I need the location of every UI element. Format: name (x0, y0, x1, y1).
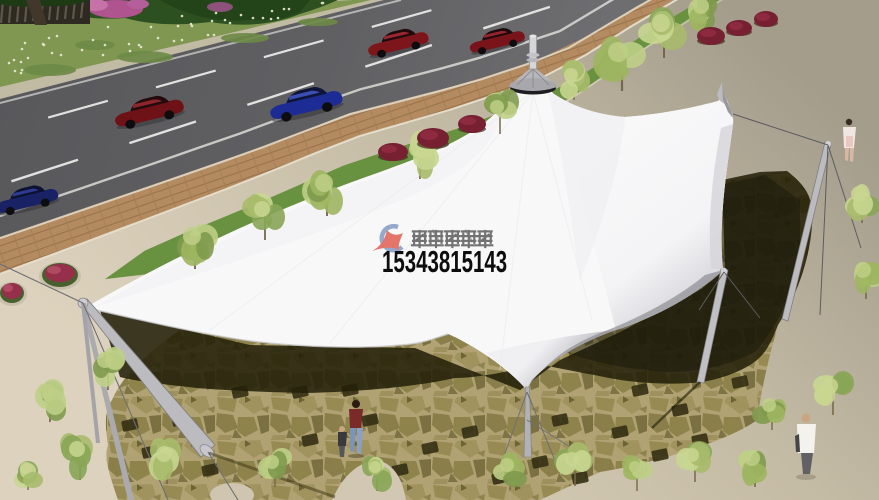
svg-text:15343815143: 15343815143 (382, 244, 507, 279)
